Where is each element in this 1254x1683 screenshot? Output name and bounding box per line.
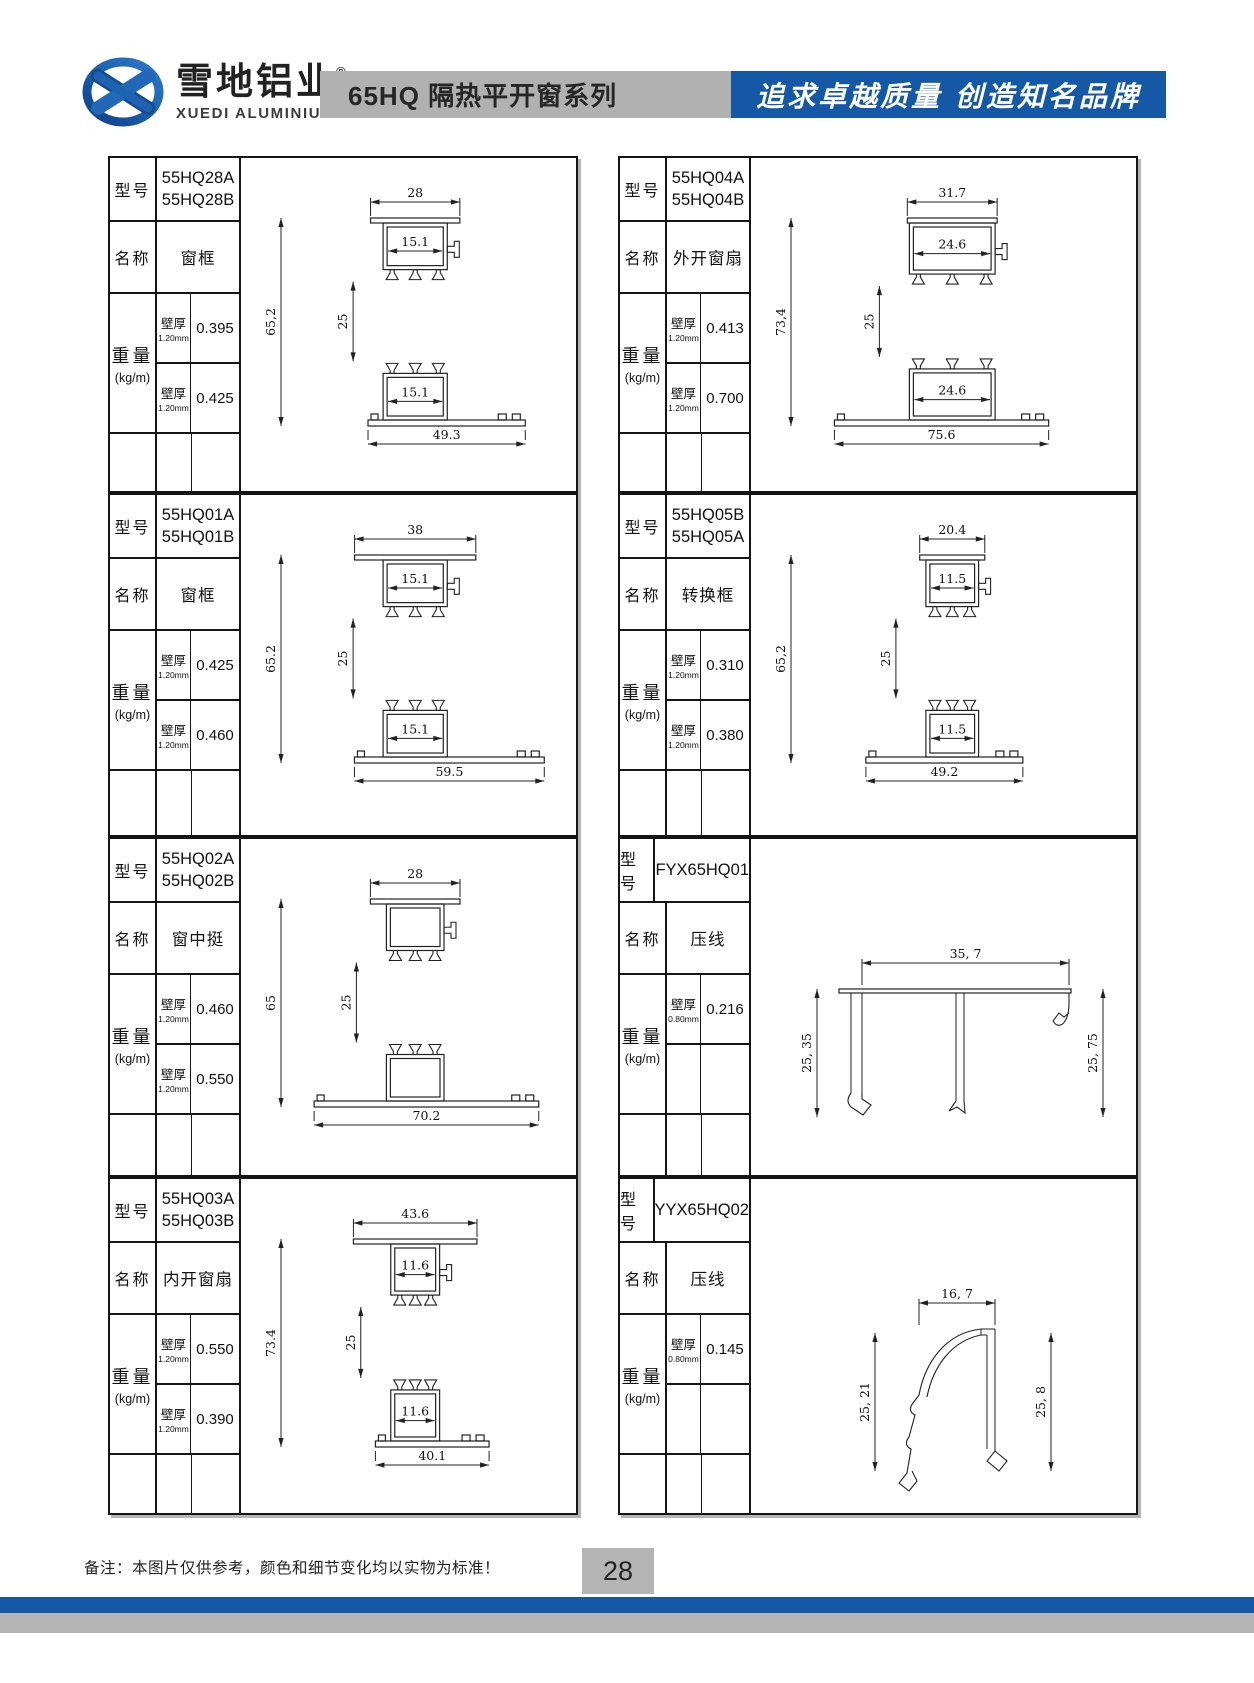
profile-name: 压线 [667, 903, 749, 973]
weight-row: 壁厚1.20mm0.413 [667, 294, 749, 364]
svg-text:25: 25 [335, 651, 350, 667]
empty-row [110, 1455, 239, 1513]
model-values: 55HQ01A55HQ01B [157, 495, 239, 557]
model-label: 型号 [624, 514, 660, 538]
svg-text:31.7: 31.7 [938, 185, 966, 200]
profile-cell-55HQ04: 型号 55HQ04A55HQ04B 名称 外开窗扇 重量(kg/m) 壁厚1.2… [618, 156, 1138, 493]
profile-name: 内开窗扇 [157, 1243, 239, 1313]
profile-cell-55HQ02: 型号 55HQ02A55HQ02B 名称 窗中挺 重量(kg/m) 壁厚1.20… [108, 837, 578, 1177]
weight-row: 壁厚1.20mm0.460 [157, 701, 239, 769]
svg-text:75.6: 75.6 [928, 427, 956, 442]
profile-cell-55HQ05: 型号 55HQ05B55HQ05A 名称 转换框 重量(kg/m) 壁厚1.20… [618, 493, 1138, 837]
profile-name: 窗中挺 [157, 903, 239, 973]
svg-text:11.5: 11.5 [938, 721, 966, 736]
profile-drawing: 28652570.2 [241, 839, 576, 1175]
svg-text:25: 25 [861, 314, 876, 330]
profile-name: 窗框 [157, 559, 239, 629]
name-label: 名称 [114, 926, 150, 950]
model-values: 55HQ05B55HQ05A [667, 495, 749, 557]
weight-label: 重量(kg/m) [110, 975, 157, 1113]
series-title-bar: 65HQ 隔热平开窗系列 [320, 71, 731, 118]
weight-row: 壁厚1.20mm0.550 [157, 1315, 239, 1385]
weight-label: 重量(kg/m) [110, 1315, 157, 1453]
svg-text:35, 7: 35, 7 [950, 946, 982, 961]
svg-text:59.5: 59.5 [435, 764, 463, 779]
svg-text:15.1: 15.1 [401, 721, 429, 736]
weight-label: 重量(kg/m) [620, 631, 667, 769]
svg-text:73.4: 73.4 [263, 1329, 278, 1357]
svg-text:20.4: 20.4 [938, 522, 966, 537]
weight-label: 重量(kg/m) [620, 294, 667, 432]
catalog-page: 雪地铝业® XUEDI ALUMINIUM 65HQ 隔热平开窗系列 追求卓越质… [0, 0, 1254, 1683]
svg-text:43.6: 43.6 [401, 1206, 429, 1221]
model-label: 型号 [114, 1198, 150, 1222]
svg-text:11.5: 11.5 [938, 571, 966, 586]
svg-text:65.2: 65.2 [263, 645, 278, 673]
name-label: 名称 [114, 582, 150, 606]
svg-text:24.6: 24.6 [938, 237, 966, 252]
model-values: YYX65HQ02 [655, 1179, 749, 1241]
svg-text:11.6: 11.6 [401, 1404, 429, 1419]
page-number: 28 [582, 1548, 654, 1594]
weight-label: 重量(kg/m) [620, 975, 667, 1113]
weight-row [667, 1385, 749, 1453]
model-label: 型号 [624, 177, 660, 201]
svg-text:65: 65 [263, 995, 278, 1011]
profile-drawing: 31.773,424.62524.675.6 [751, 158, 1138, 491]
weight-row: 壁厚0.80mm0.145 [667, 1315, 749, 1385]
svg-text:11.6: 11.6 [401, 1258, 429, 1273]
empty-row [620, 771, 749, 835]
name-label: 名称 [114, 1266, 150, 1290]
footer-blue-bar [0, 1597, 1254, 1613]
empty-row [620, 1455, 749, 1513]
svg-text:24.6: 24.6 [938, 383, 966, 398]
svg-text:70.2: 70.2 [413, 1108, 441, 1123]
name-label: 名称 [624, 245, 660, 269]
name-label: 名称 [114, 245, 150, 269]
empty-row [620, 1115, 749, 1175]
svg-text:25, 8: 25, 8 [1033, 1386, 1048, 1418]
xuedi-logo-icon [82, 56, 164, 128]
svg-text:73,4: 73,4 [773, 308, 788, 336]
svg-text:15.1: 15.1 [401, 384, 429, 399]
svg-text:38: 38 [407, 522, 423, 537]
profile-cell-55HQ03: 型号 55HQ03A55HQ03B 名称 内开窗扇 重量(kg/m) 壁厚1.2… [108, 1177, 578, 1515]
profile-drawing: 3865.215.12515.159.5 [241, 495, 576, 835]
svg-text:25: 25 [335, 314, 350, 330]
profile-name: 转换框 [667, 559, 749, 629]
model-values: 55HQ02A55HQ02B [157, 839, 239, 901]
svg-text:25: 25 [878, 651, 893, 667]
svg-text:65,2: 65,2 [773, 645, 788, 673]
svg-text:15.1: 15.1 [401, 571, 429, 586]
svg-text:28: 28 [407, 185, 423, 200]
empty-row [110, 771, 239, 835]
model-values: 55HQ28A55HQ28B [157, 158, 239, 220]
profile-drawing: 35, 725, 3525, 75 [751, 839, 1138, 1175]
profile-name: 窗框 [157, 222, 239, 292]
weight-label: 重量(kg/m) [110, 631, 157, 769]
svg-text:25, 75: 25, 75 [1085, 1033, 1100, 1073]
name-label: 名称 [624, 582, 660, 606]
svg-text:49.2: 49.2 [930, 764, 958, 779]
empty-row [110, 1115, 239, 1175]
weight-row: 壁厚1.20mm0.460 [157, 975, 239, 1045]
profile-drawing: 2865,215.12515.149.3 [241, 158, 576, 491]
weight-label: 重量(kg/m) [620, 1315, 667, 1453]
profile-cell-YYX65HQ02: 型号 YYX65HQ02 名称 压线 重量(kg/m) 壁厚0.80mm0.14… [618, 1177, 1138, 1515]
svg-text:15.1: 15.1 [401, 234, 429, 249]
model-label: 型号 [620, 846, 653, 894]
weight-row: 壁厚1.20mm0.390 [157, 1385, 239, 1453]
weight-row: 壁厚1.20mm0.425 [157, 631, 239, 701]
slogan-bar: 追求卓越质量 创造知名品牌 [731, 71, 1166, 118]
weight-row: 壁厚0.80mm0.216 [667, 975, 749, 1045]
weight-row: 壁厚1.20mm0.550 [157, 1045, 239, 1113]
series-title: 65HQ 隔热平开窗系列 [348, 76, 617, 113]
model-label: 型号 [114, 858, 150, 882]
profile-cell-55HQ01: 型号 55HQ01A55HQ01B 名称 窗框 重量(kg/m) 壁厚1.20m… [108, 493, 578, 837]
profile-drawing: 43.673.411.62511.640.1 [241, 1179, 576, 1513]
model-label: 型号 [114, 177, 150, 201]
model-values: 55HQ03A55HQ03B [157, 1179, 239, 1241]
company-logo: 雪地铝业® XUEDI ALUMINIUM [82, 56, 349, 128]
svg-text:16, 7: 16, 7 [941, 1286, 973, 1301]
profile-cell-FYX65HQ01: 型号 FYX65HQ01 名称 压线 重量(kg/m) 壁厚0.80mm0.21… [618, 837, 1138, 1177]
model-values: 55HQ04A55HQ04B [667, 158, 749, 220]
svg-text:25, 35: 25, 35 [799, 1033, 814, 1073]
model-values: FYX65HQ01 [655, 839, 749, 901]
name-label: 名称 [624, 1266, 660, 1290]
weight-row [667, 1045, 749, 1113]
weight-row: 壁厚1.20mm0.310 [667, 631, 749, 701]
profile-cell-55HQ28: 型号 55HQ28A55HQ28B 名称 窗框 重量(kg/m) 壁厚1.20m… [108, 156, 578, 493]
svg-text:65,2: 65,2 [263, 308, 278, 336]
weight-row: 壁厚1.20mm0.380 [667, 701, 749, 769]
weight-row: 壁厚1.20mm0.700 [667, 364, 749, 432]
model-label: 型号 [620, 1186, 653, 1234]
empty-row [620, 434, 749, 491]
svg-text:25: 25 [343, 1335, 358, 1351]
weight-row: 壁厚1.20mm0.395 [157, 294, 239, 364]
profile-drawing: 16, 725, 2125, 8 [751, 1179, 1138, 1513]
footer-gray-bar [0, 1613, 1254, 1633]
profile-name: 外开窗扇 [667, 222, 749, 292]
name-label: 名称 [624, 926, 660, 950]
slogan-text: 追求卓越质量 创造知名品牌 [756, 75, 1141, 115]
profile-name: 压线 [667, 1243, 749, 1313]
footer-note: 备注：本图片仅供参考，颜色和细节变化均以实物为标准！ [84, 1556, 500, 1578]
svg-text:25, 21: 25, 21 [857, 1382, 872, 1422]
spec-table: 型号 55HQ28A55HQ28B 名称 窗框 重量(kg/m) 壁厚1.20m… [110, 158, 241, 491]
svg-text:25: 25 [338, 995, 353, 1011]
weight-label: 重量(kg/m) [110, 294, 157, 432]
empty-row [110, 434, 239, 491]
profile-drawing: 20.465,211.52511.549.2 [751, 495, 1138, 835]
svg-text:28: 28 [407, 866, 423, 881]
svg-text:49.3: 49.3 [433, 427, 461, 442]
weight-row: 壁厚1.20mm0.425 [157, 364, 239, 432]
svg-text:40.1: 40.1 [418, 1448, 446, 1463]
model-label: 型号 [114, 514, 150, 538]
